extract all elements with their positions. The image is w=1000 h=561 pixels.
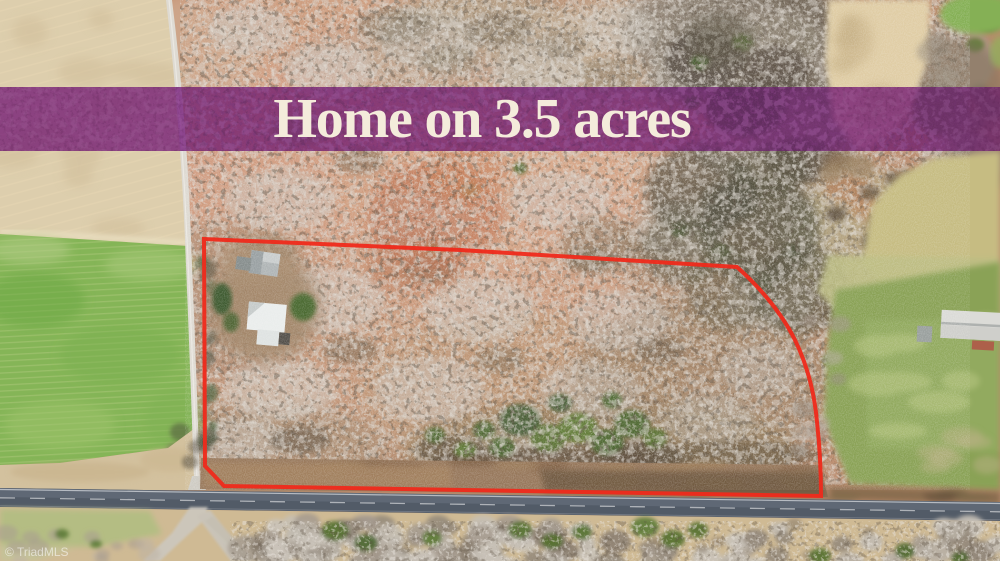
svg-text:© TriadMLS: © TriadMLS: [5, 545, 69, 559]
svg-text:Home on 3.5 acres: Home on 3.5 acres: [273, 88, 691, 150]
